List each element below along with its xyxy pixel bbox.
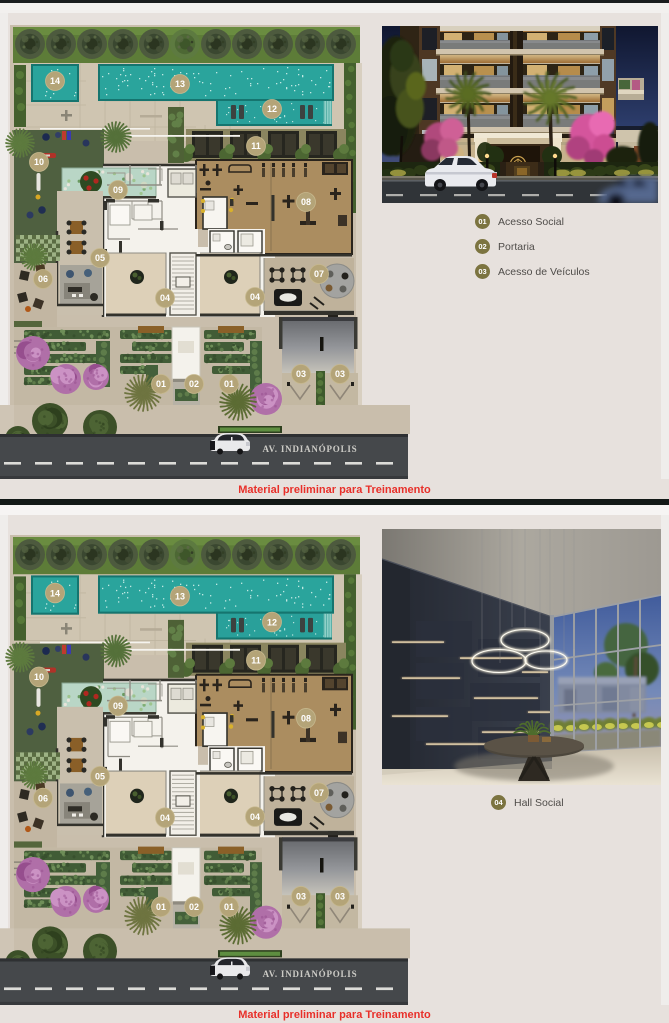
svg-text:01: 01: [224, 379, 234, 389]
svg-text:13: 13: [175, 79, 185, 89]
svg-text:02: 02: [189, 379, 199, 389]
svg-text:06: 06: [38, 274, 48, 284]
svg-text:03: 03: [335, 369, 345, 379]
svg-text:03: 03: [296, 369, 306, 379]
svg-text:AV. INDIANÓPOLIS: AV. INDIANÓPOLIS: [263, 444, 358, 454]
svg-text:05: 05: [95, 253, 105, 263]
svg-text:11: 11: [251, 141, 261, 151]
svg-text:04: 04: [250, 292, 260, 302]
svg-text:14: 14: [50, 76, 60, 86]
svg-text:04: 04: [160, 293, 170, 303]
svg-text:12: 12: [267, 104, 277, 114]
svg-text:07: 07: [314, 269, 324, 279]
svg-text:10: 10: [34, 157, 44, 167]
svg-text:01: 01: [156, 379, 166, 389]
svg-text:09: 09: [113, 185, 123, 195]
svg-text:08: 08: [301, 197, 311, 207]
